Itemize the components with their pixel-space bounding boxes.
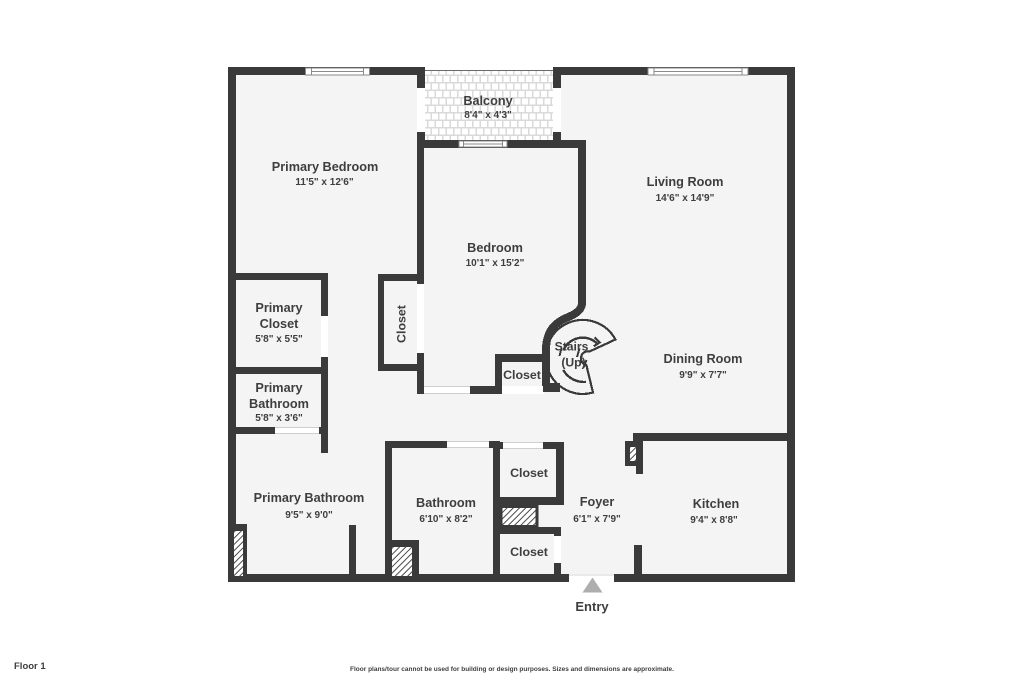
svg-text:Dining Room: Dining Room [664, 352, 743, 366]
svg-text:Primary Bathroom: Primary Bathroom [254, 491, 365, 505]
svg-text:Closet: Closet [510, 466, 548, 480]
svg-text:Primary: Primary [255, 301, 302, 315]
svg-text:8'4" x 4'3": 8'4" x 4'3" [464, 110, 512, 121]
svg-text:Bedroom: Bedroom [467, 241, 523, 255]
svg-text:Living Room: Living Room [647, 175, 724, 189]
svg-text:Closet: Closet [260, 317, 300, 331]
svg-text:Closet: Closet [395, 305, 409, 343]
svg-text:Floor 1: Floor 1 [14, 661, 46, 672]
svg-text:5'8" x 3'6": 5'8" x 3'6" [255, 413, 303, 424]
svg-text:6'10" x 8'2": 6'10" x 8'2" [419, 514, 472, 525]
svg-text:9'5" x 9'0": 9'5" x 9'0" [285, 510, 333, 521]
svg-text:14'6" x 14'9": 14'6" x 14'9" [656, 193, 715, 204]
svg-text:11'5" x 12'6": 11'5" x 12'6" [295, 177, 353, 188]
svg-text:9'9" x 7'7": 9'9" x 7'7" [679, 370, 727, 381]
svg-text:Bathroom: Bathroom [249, 397, 309, 411]
svg-text:Entry: Entry [575, 599, 609, 614]
svg-text:Kitchen: Kitchen [693, 497, 740, 511]
svg-text:Foyer: Foyer [580, 495, 615, 509]
svg-text:10'1" x 15'2": 10'1" x 15'2" [466, 258, 525, 269]
svg-text:Closet: Closet [510, 545, 548, 559]
svg-text:Primary Bedroom: Primary Bedroom [272, 160, 378, 174]
svg-text:Primary: Primary [255, 381, 302, 395]
svg-text:Bathroom: Bathroom [416, 496, 476, 510]
svg-text:9'4" x 8'8": 9'4" x 8'8" [690, 515, 738, 526]
svg-text:Closet: Closet [503, 368, 541, 382]
svg-text:Balcony: Balcony [463, 94, 512, 108]
svg-text:6'1" x 7'9": 6'1" x 7'9" [573, 514, 621, 525]
svg-text:(Up): (Up) [561, 356, 585, 370]
svg-text:Floor plans/tour cannot be use: Floor plans/tour cannot be used for buil… [350, 666, 674, 673]
svg-text:Stairs: Stairs [555, 340, 589, 354]
svg-text:5'8" x 5'5": 5'8" x 5'5" [255, 334, 303, 345]
